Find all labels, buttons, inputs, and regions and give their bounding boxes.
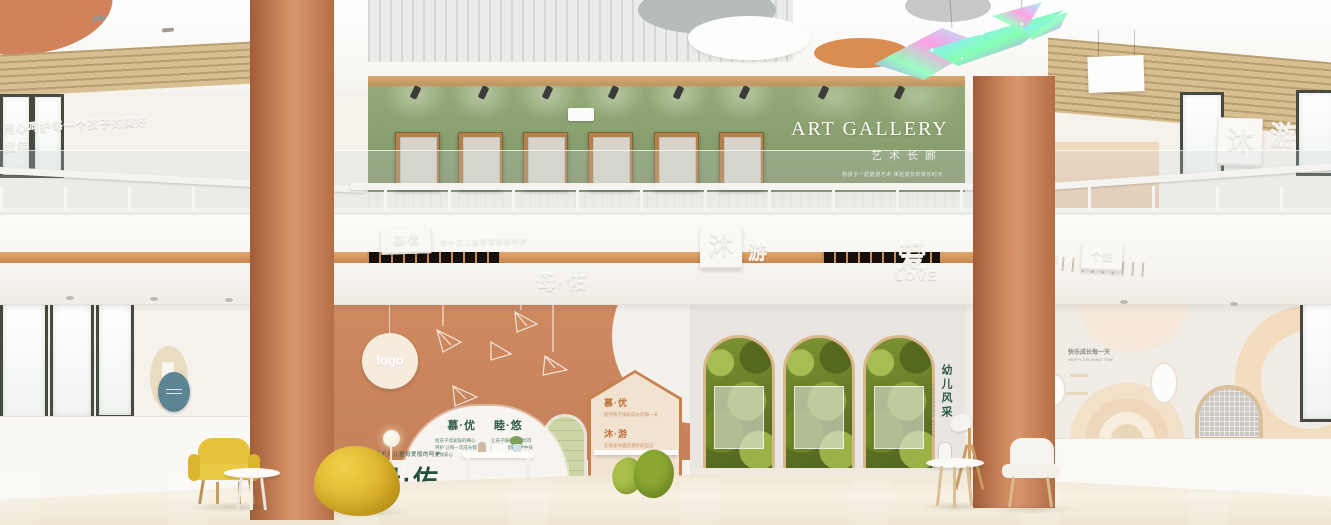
armchair-leg — [216, 482, 219, 504]
fascia-love-en: LOVE — [895, 268, 938, 283]
right-wall-line2: HAPPY GROWING TIME — [1068, 357, 1138, 362]
fascia-you-char: 游 — [748, 238, 767, 265]
round-mirror — [1150, 362, 1178, 404]
lower-right-window — [1300, 300, 1331, 422]
acrylic-panel — [874, 386, 924, 449]
kids-corner-subtitle: CHILDREN'S STYLE — [931, 384, 936, 438]
fascia-left-plaque-text: 慕·优 — [393, 235, 419, 248]
armchair-arm — [188, 454, 200, 481]
side-table-right-leg — [953, 467, 956, 508]
soffit-downlight — [66, 296, 74, 300]
house-title-1: 慕·优 — [604, 396, 668, 409]
floor-shadow — [920, 502, 995, 511]
wall-shelf — [1070, 374, 1088, 377]
art-gallery-title: ART GALLERY — [791, 118, 943, 141]
side-table-left-leg — [250, 476, 253, 510]
logo-string — [389, 302, 390, 334]
column-left — [250, 0, 334, 520]
kids-corner-title: 幼儿风采 — [938, 364, 954, 420]
floor-shadow — [990, 504, 1075, 514]
plant-arch — [703, 335, 775, 478]
acrylic-panel — [714, 386, 764, 449]
fascia-stripe — [940, 252, 974, 263]
lounge-chair-seat — [1002, 464, 1060, 478]
house-line-1: 陪伴孩子快乐成长的每一天 — [604, 412, 668, 418]
you-char: 游 — [1269, 116, 1296, 154]
house-title-2: 沐·游 — [604, 427, 668, 440]
fascia-brand: 母·佑 — [536, 266, 589, 296]
right-wall-line1: 快乐成长每一天 — [1068, 347, 1138, 356]
right-wall-text: 快乐成长每一天 HAPPY GROWING TIME — [1068, 347, 1138, 362]
soffit-downlight — [225, 298, 233, 302]
pendant-sign — [1087, 55, 1144, 93]
soffit-downlight — [1230, 302, 1238, 306]
fascia-mu-char: 沐 — [709, 233, 733, 260]
wall-control-panel — [568, 108, 594, 121]
soffit-downlight — [1120, 300, 1128, 304]
fascia-right-plaque-text: 个性 — [1091, 250, 1114, 263]
plant-arch — [783, 335, 855, 478]
paper-plane-outlines — [425, 300, 595, 420]
iridescent-plane-sculpture — [872, 0, 1072, 92]
logo-circle: logo — [362, 333, 418, 389]
console-table-top — [462, 452, 534, 458]
floor-lamp-globe — [383, 430, 400, 447]
logo-text: logo — [376, 353, 403, 368]
lower-left-window — [0, 300, 48, 422]
fascia-left-note: 给千万儿童母爱般的呵护 — [440, 236, 528, 248]
soffit-downlight — [150, 297, 158, 301]
cloud-white — [688, 16, 810, 60]
fascia-mu-plaque: 沐 — [700, 227, 742, 269]
fascia-right-plaque: 个性 — [1081, 242, 1122, 272]
dome-title-left: 慕·优 — [447, 417, 476, 433]
lower-left-window — [96, 300, 134, 418]
pendant-sign-wire — [1098, 30, 1099, 58]
acrylic-panel — [794, 386, 844, 449]
teal-badge-lines — [166, 386, 182, 394]
wall-shelf — [1066, 392, 1088, 395]
lobby-scene: 用心呵护每一个孩子的美好童年 ART GALLERY 艺术长廊 陪孩子一起遨游艺… — [0, 0, 1331, 525]
console-table-shelf — [470, 470, 526, 474]
house-text-block: 慕·优 陪伴孩子快乐成长的每一天 沐·游 在探索中遇见更好的自己 — [604, 396, 668, 449]
pendant-sign-wire — [1134, 30, 1135, 56]
dome-title-right: 睦·悠 — [494, 417, 523, 433]
fascia-stripe — [500, 252, 822, 263]
railing-bottom-rail — [0, 212, 1331, 215]
fascia-left-plaque: 慕·优 — [381, 227, 432, 255]
lower-left-window — [50, 300, 94, 420]
plant-arch — [863, 335, 935, 478]
dome-titles: 慕·优 睦·悠 — [402, 417, 568, 433]
house-line-2: 在探索中遇见更好的自己 — [604, 443, 668, 449]
